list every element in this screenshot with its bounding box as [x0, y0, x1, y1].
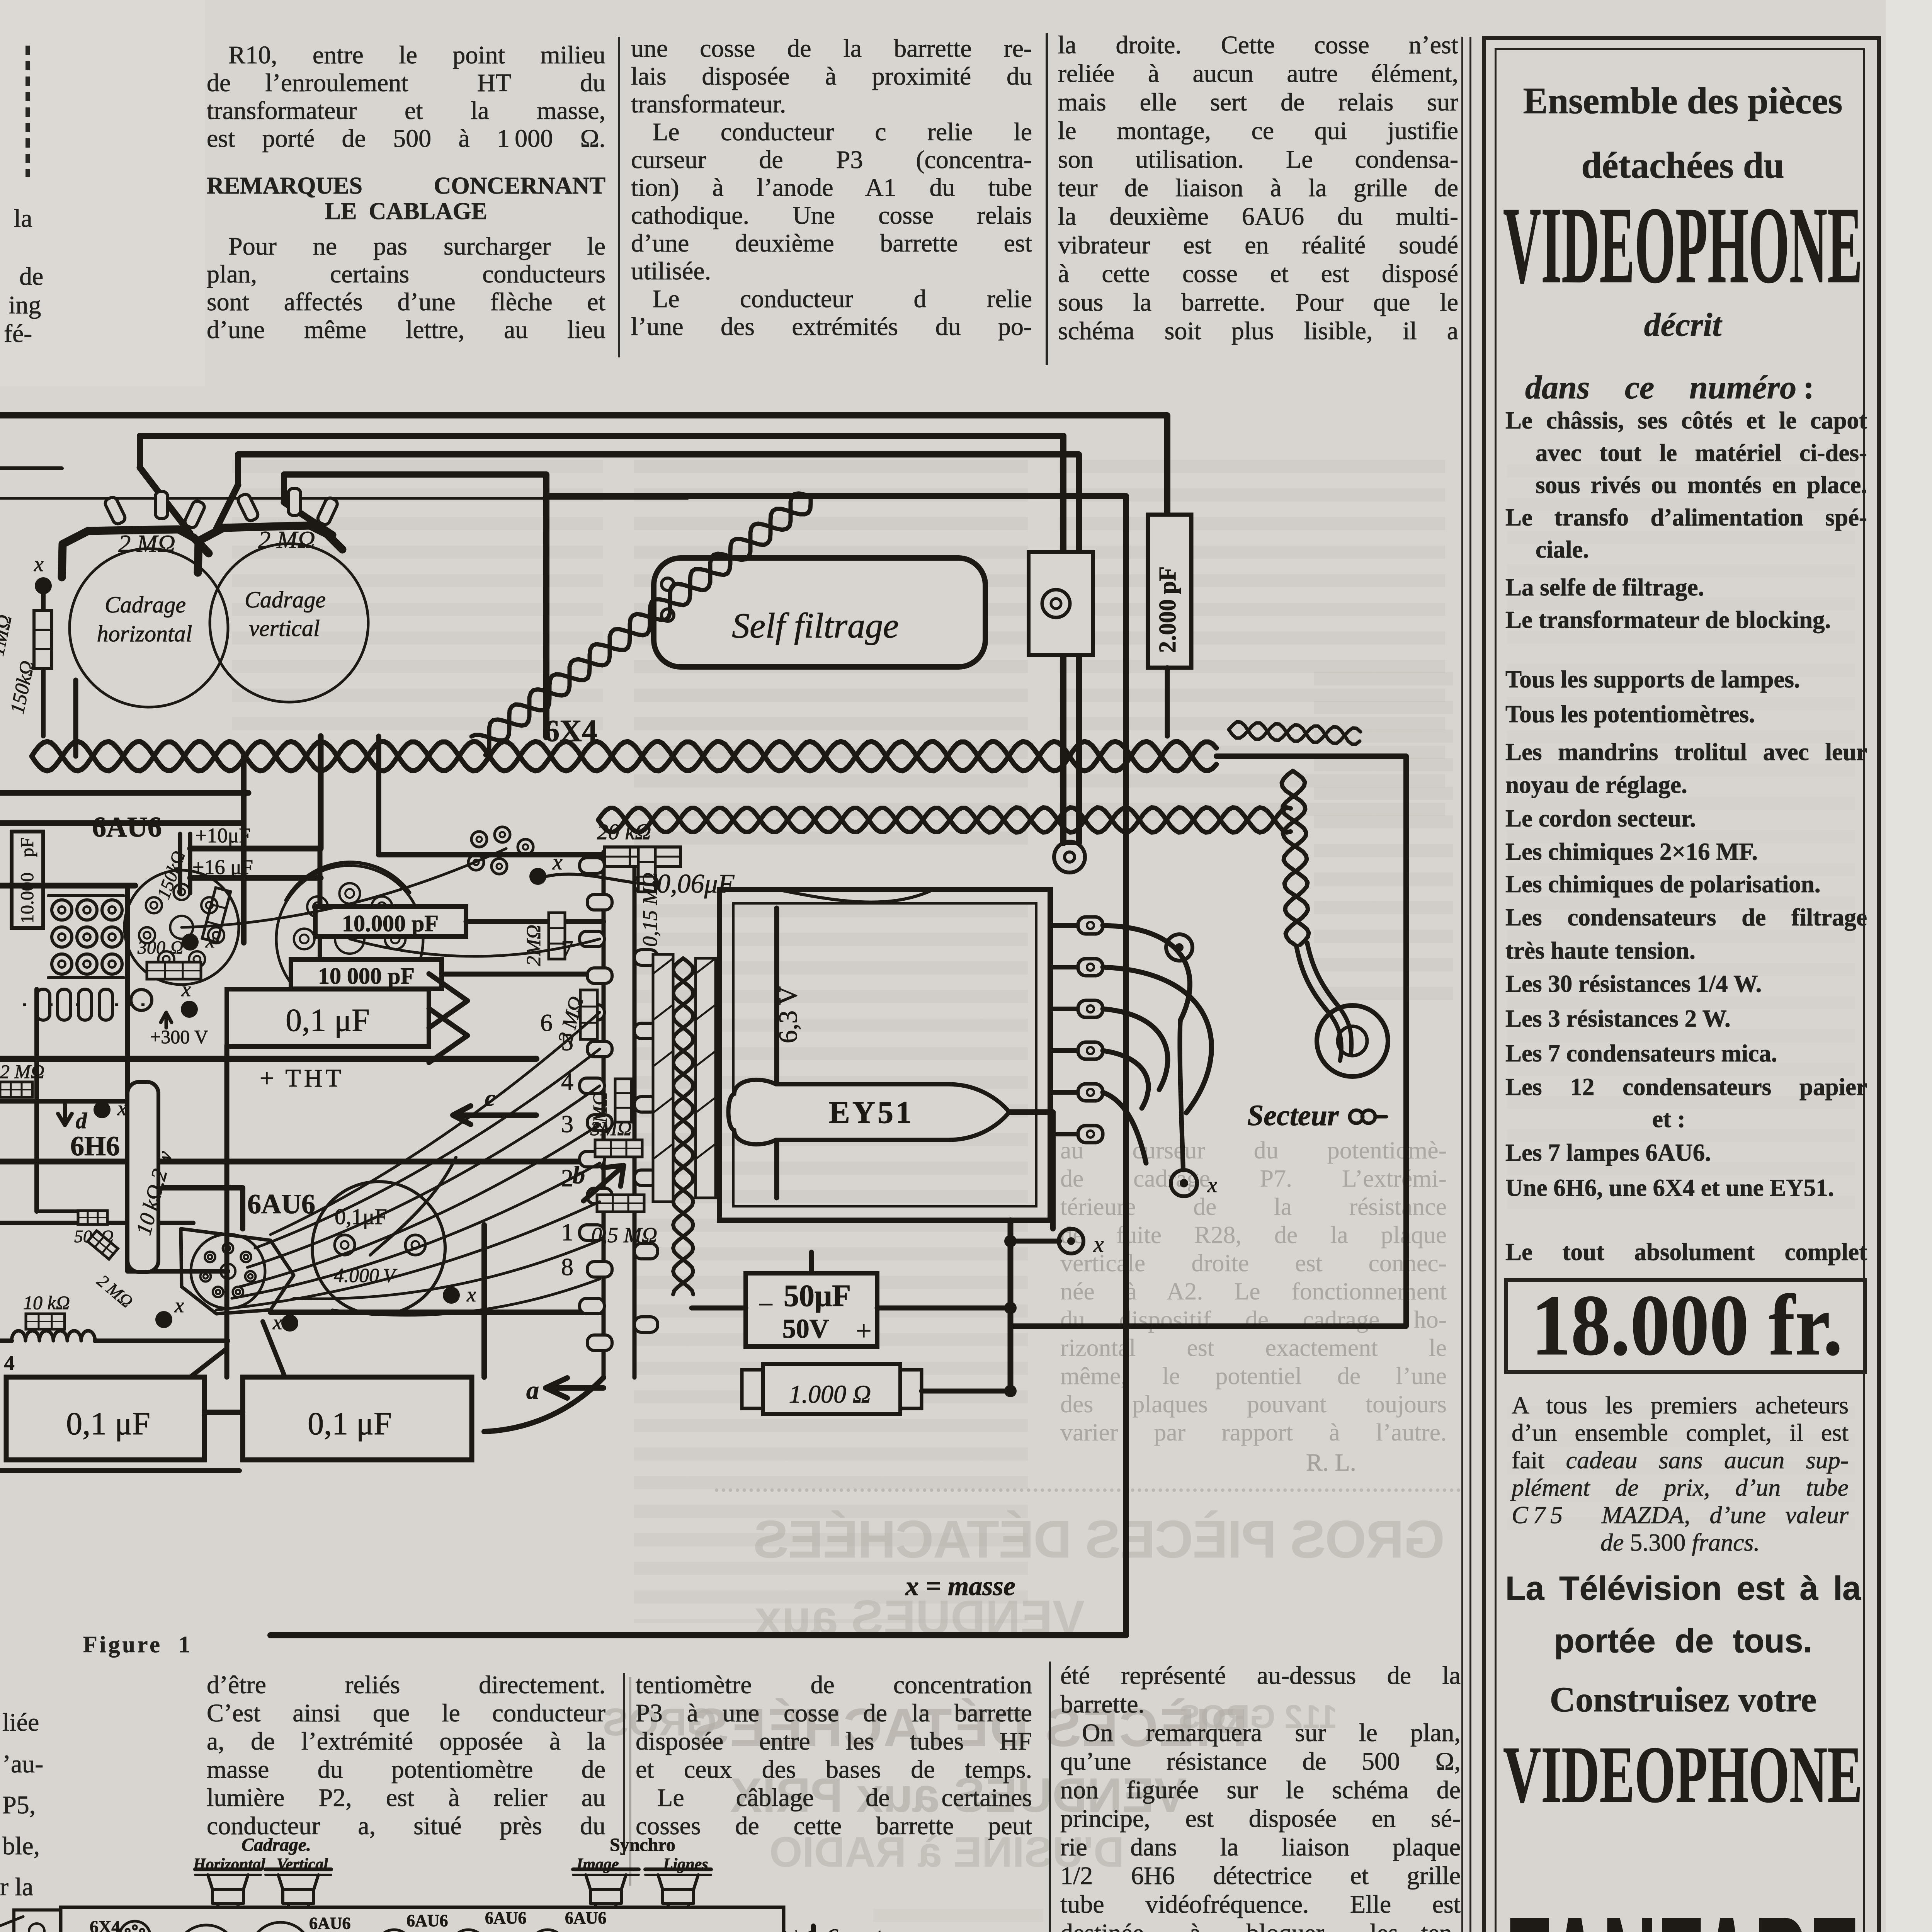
svg-text:Cadrage.: Cadrage.	[241, 1835, 311, 1855]
svg-text:6AU6: 6AU6	[309, 1914, 351, 1932]
svg-text:Concеntr.: Concеntr.	[828, 1926, 890, 1932]
svg-text:6AU6: 6AU6	[406, 1911, 448, 1930]
svg-text:6AU6: 6AU6	[485, 1908, 527, 1927]
svg-text:6AU6: 6AU6	[565, 1908, 607, 1927]
svg-text:Synchro: Synchro	[610, 1835, 675, 1855]
svg-text:6X4: 6X4	[90, 1917, 120, 1932]
